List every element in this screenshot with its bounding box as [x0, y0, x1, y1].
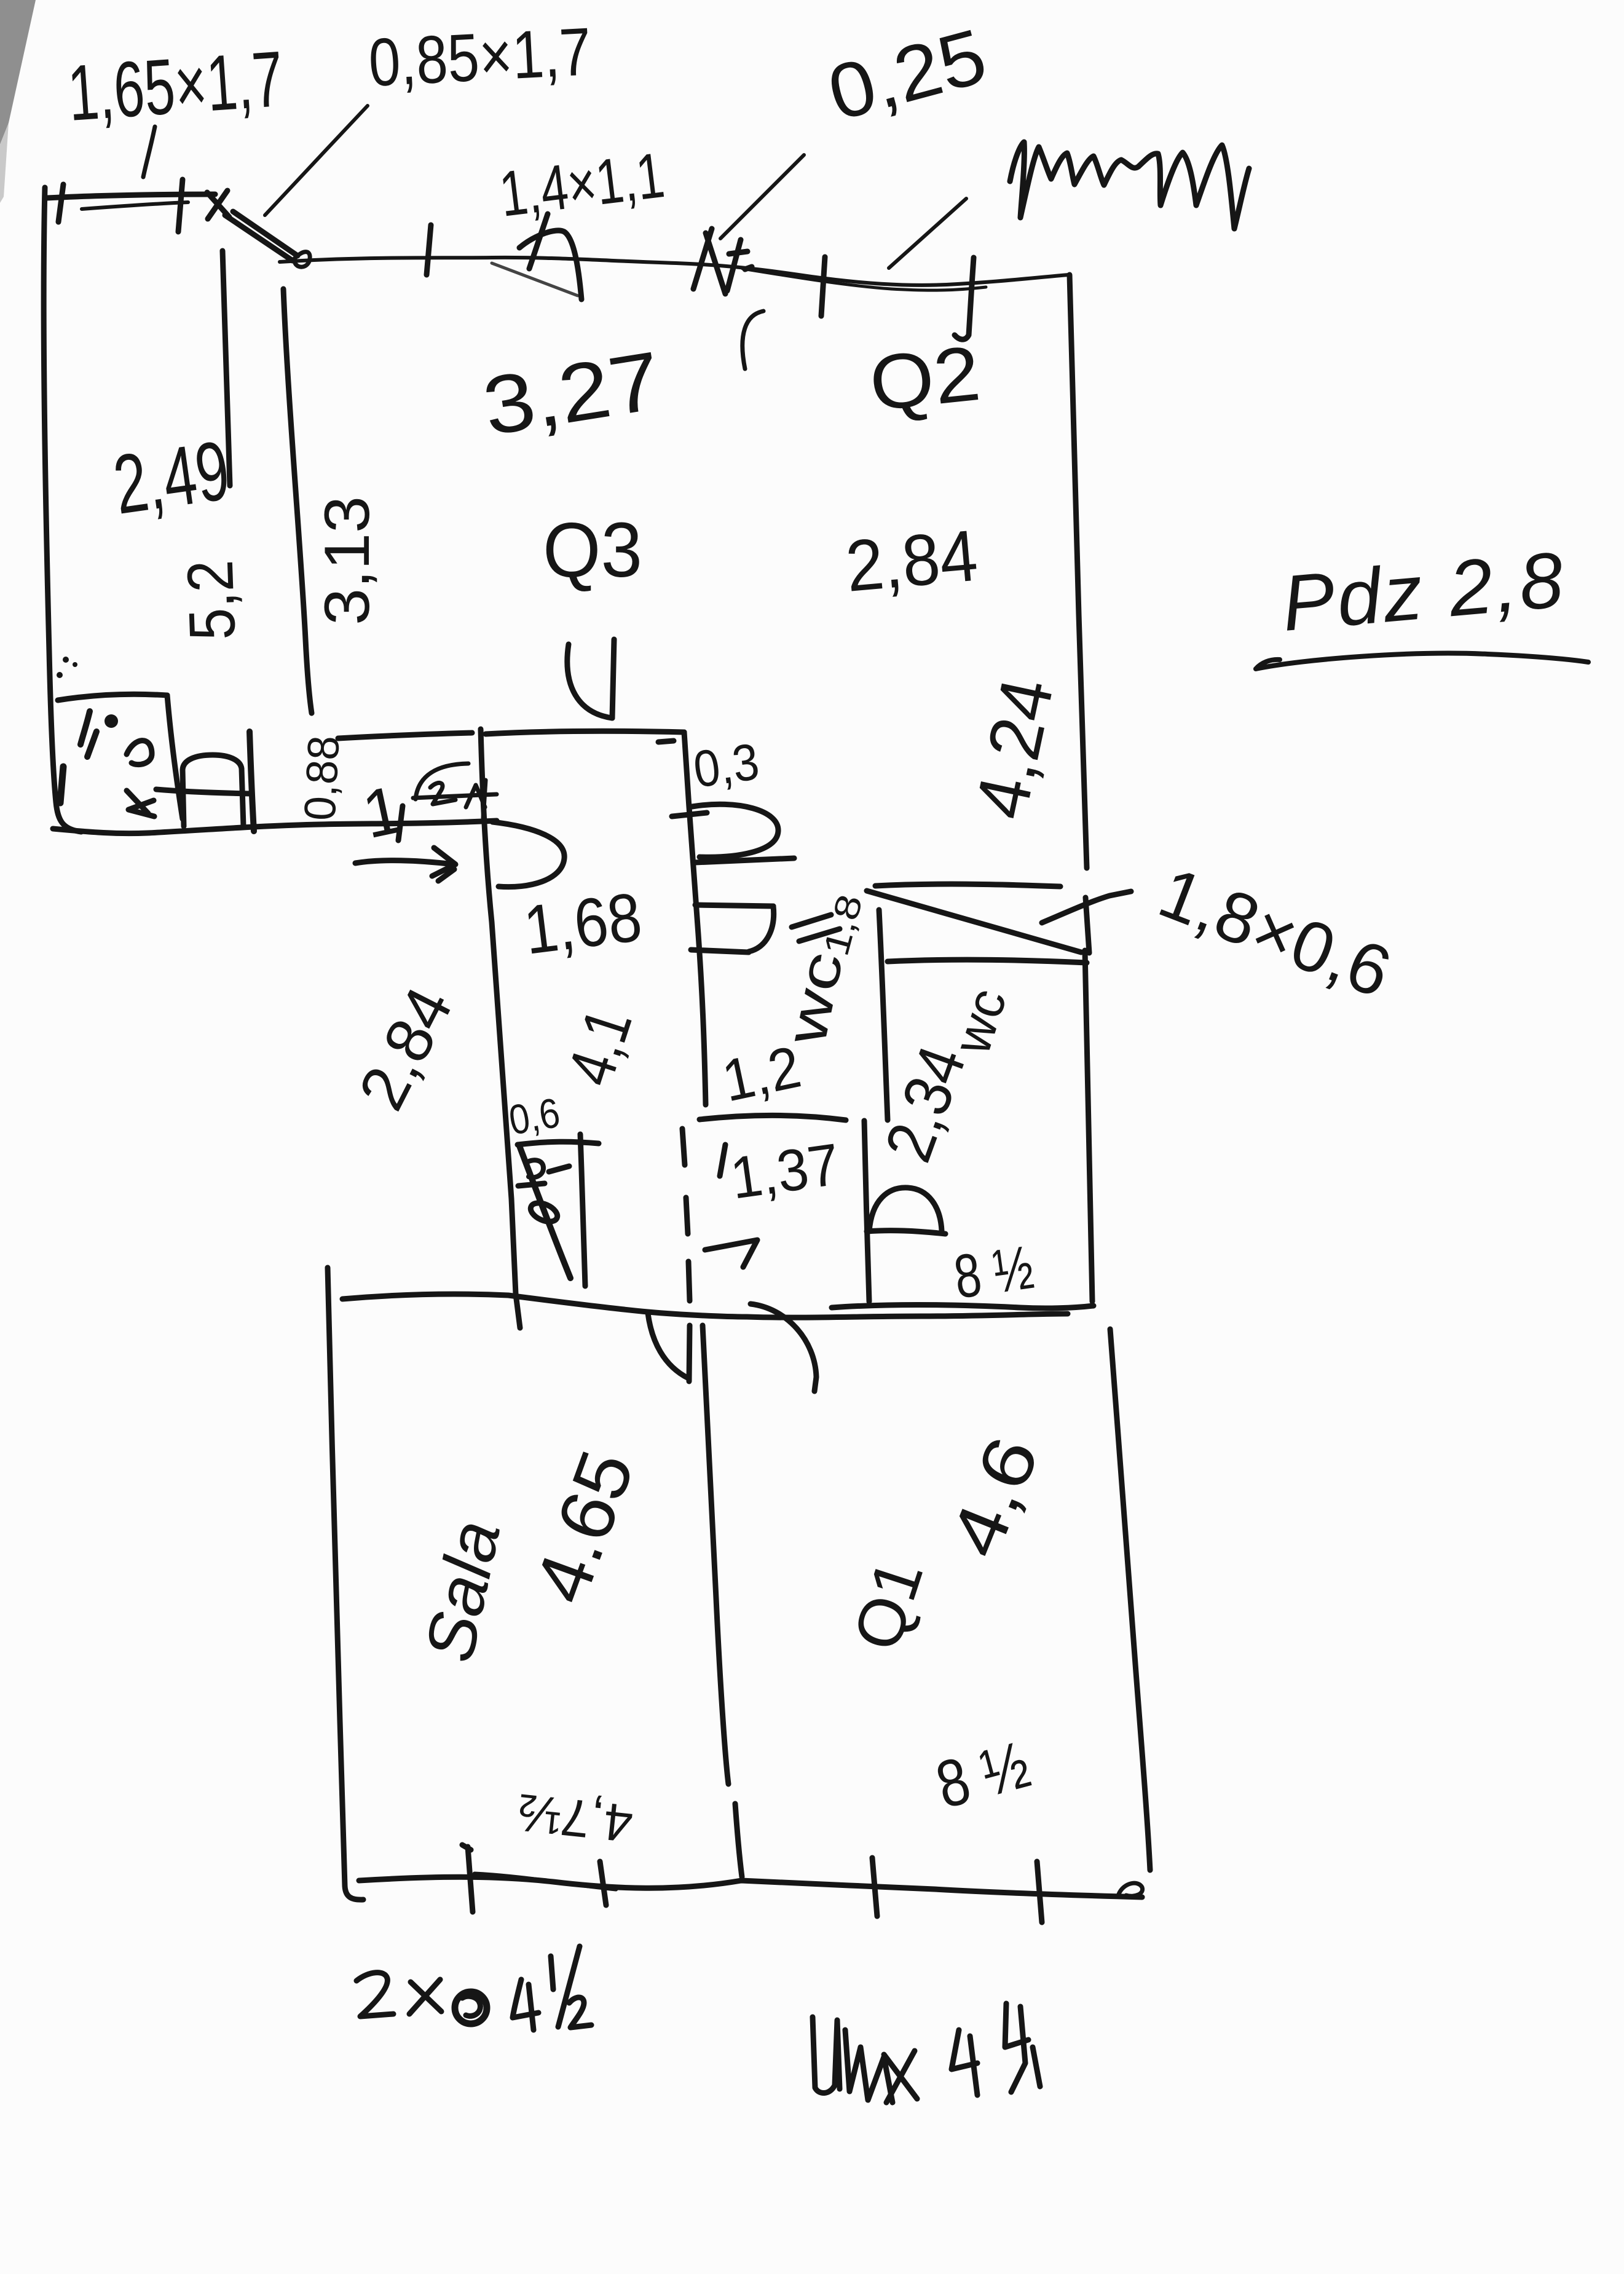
- svg-text:0,3: 0,3: [690, 732, 762, 799]
- svg-text:8 ½: 8 ½: [950, 1233, 1037, 1312]
- svg-text:4,7½: 4,7½: [515, 1782, 636, 1853]
- svg-text:Q2: Q2: [865, 330, 984, 427]
- svg-text:1,68: 1,68: [520, 878, 646, 968]
- svg-text:0,85×1,7: 0,85×1,7: [367, 14, 593, 101]
- svg-text:2,84: 2,84: [843, 515, 981, 607]
- svg-text:2,49: 2,49: [108, 423, 235, 532]
- svg-text:Q3: Q3: [543, 507, 642, 593]
- svg-text:5,2: 5,2: [174, 559, 249, 641]
- svg-text:1,65×1,7: 1,65×1,7: [65, 35, 286, 138]
- svg-text:3,13: 3,13: [312, 496, 383, 625]
- svg-text:0,6: 0,6: [505, 1089, 563, 1144]
- svg-text:0,88: 0,88: [295, 735, 349, 822]
